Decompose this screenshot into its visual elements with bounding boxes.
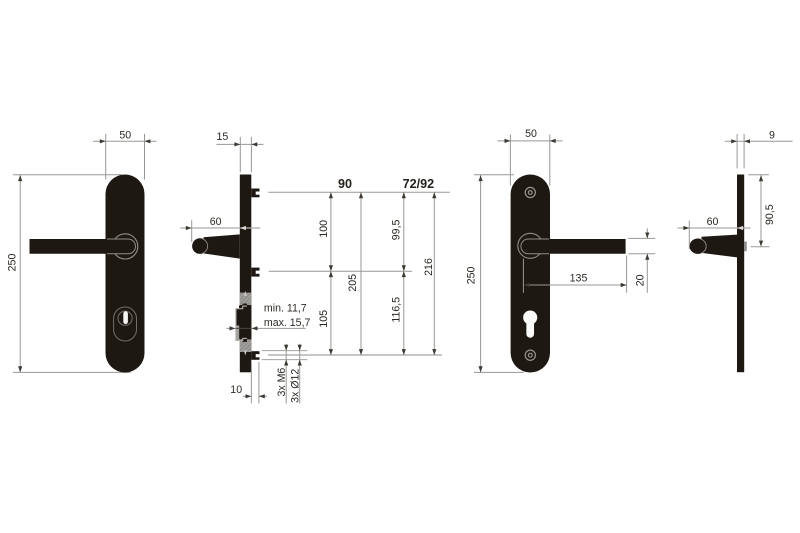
svg-text:250: 250 xyxy=(465,266,477,284)
svg-text:135: 135 xyxy=(570,273,588,285)
svg-text:3x M6: 3x M6 xyxy=(276,368,288,397)
svg-text:72/92: 72/92 xyxy=(403,177,435,191)
svg-text:20: 20 xyxy=(634,274,646,286)
svg-text:250: 250 xyxy=(6,254,18,272)
svg-text:216: 216 xyxy=(423,258,435,276)
svg-text:60: 60 xyxy=(707,216,719,228)
svg-text:205: 205 xyxy=(347,274,359,292)
svg-text:9: 9 xyxy=(769,130,775,142)
svg-text:90,5: 90,5 xyxy=(764,204,776,225)
svg-text:60: 60 xyxy=(210,216,222,228)
svg-text:100: 100 xyxy=(318,220,330,238)
svg-text:50: 50 xyxy=(525,128,537,140)
svg-text:90: 90 xyxy=(338,177,352,191)
svg-text:99,5: 99,5 xyxy=(391,219,403,240)
svg-text:10: 10 xyxy=(230,384,242,396)
svg-text:116,5: 116,5 xyxy=(391,297,403,323)
svg-text:max. 15,7: max. 15,7 xyxy=(264,317,311,329)
svg-text:min. 11,7: min. 11,7 xyxy=(264,303,307,315)
svg-text:105: 105 xyxy=(318,310,330,328)
svg-text:50: 50 xyxy=(119,129,131,141)
svg-text:3x Ø12: 3x Ø12 xyxy=(290,369,302,403)
svg-text:15: 15 xyxy=(217,131,229,143)
